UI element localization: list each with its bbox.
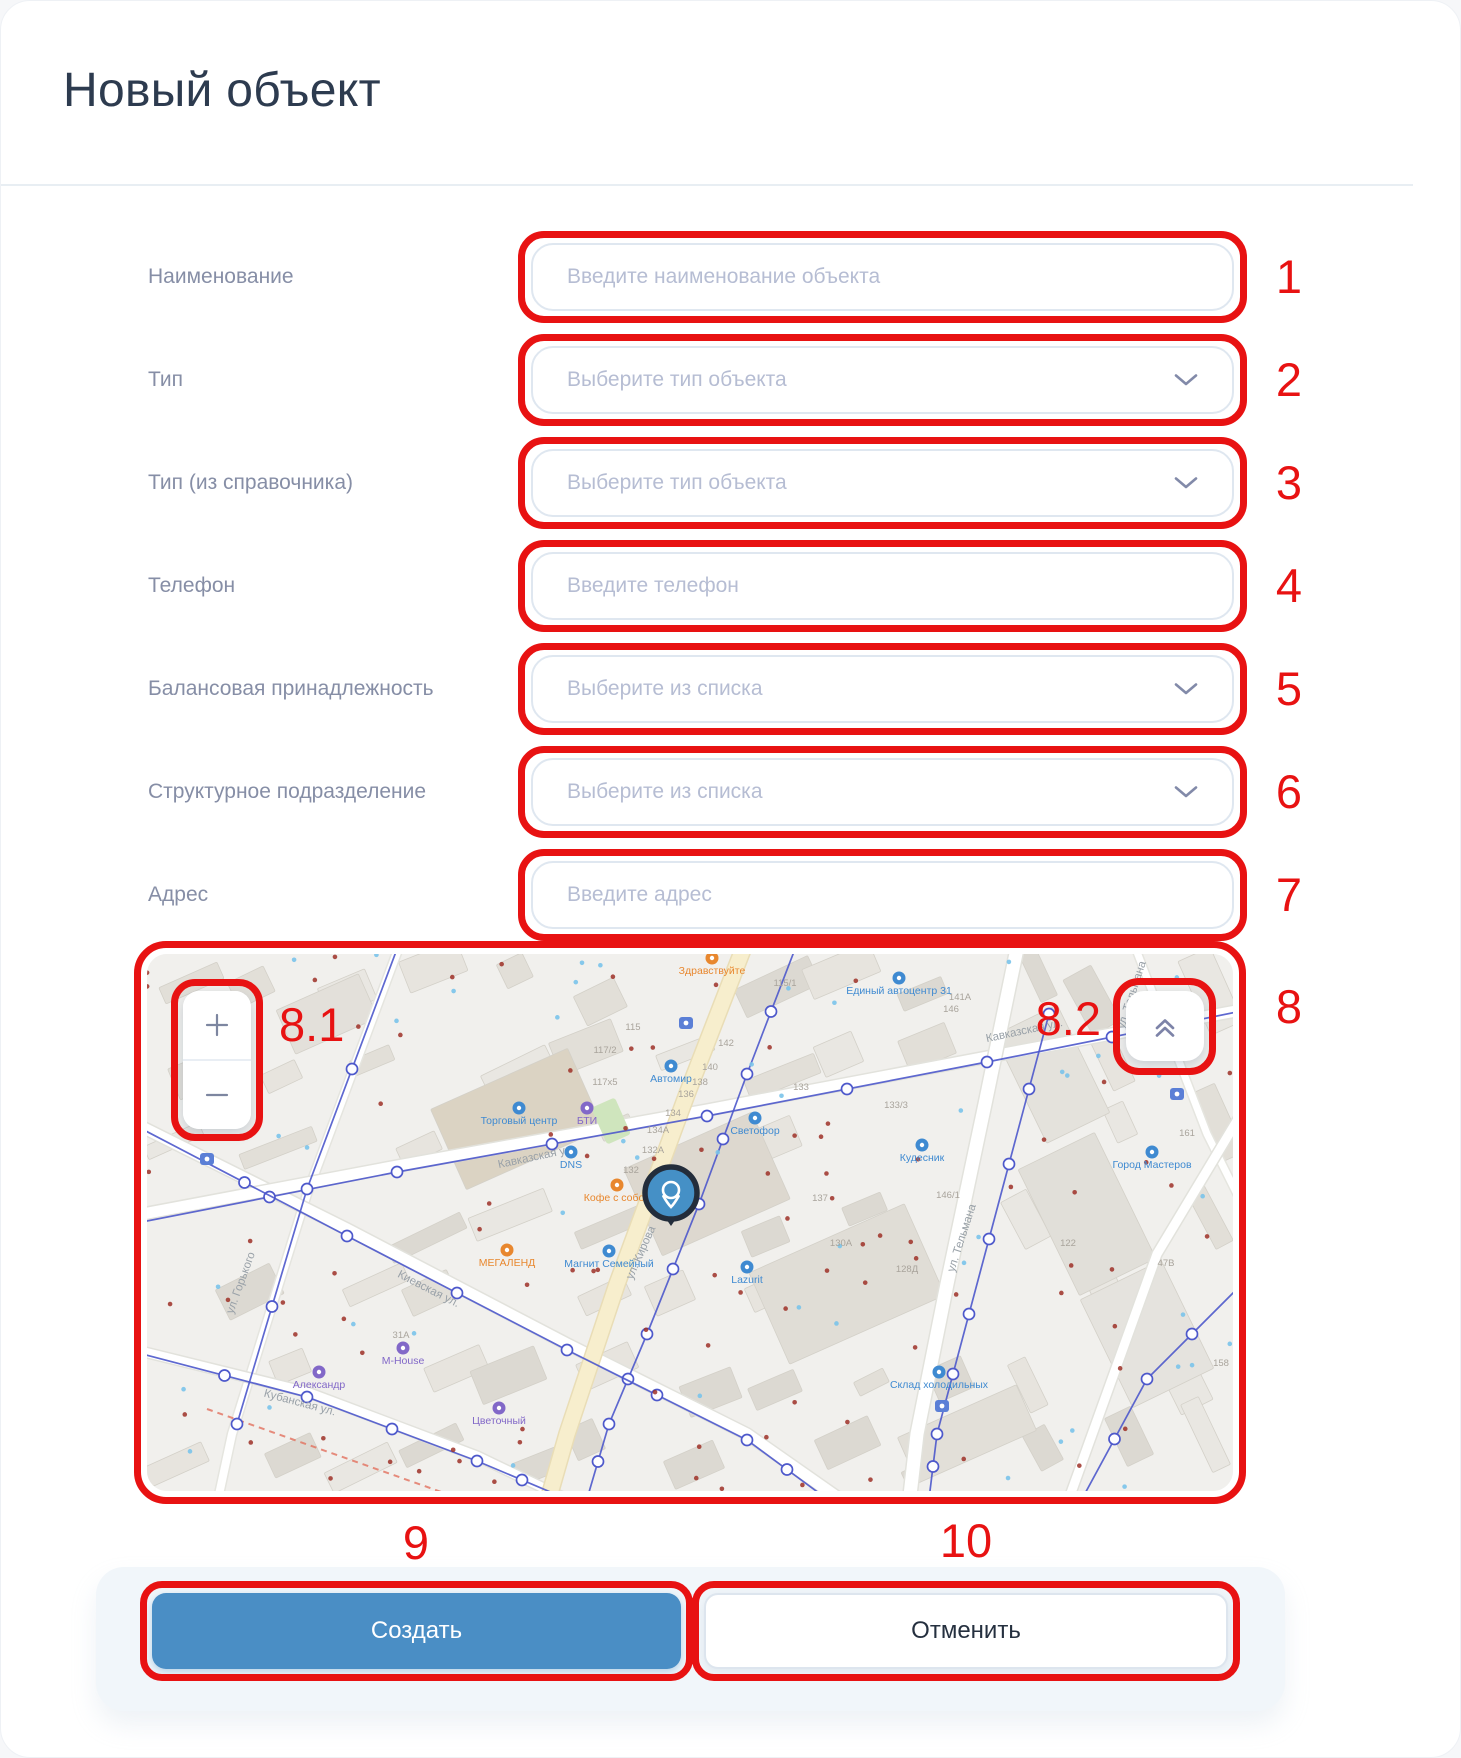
cancel-button[interactable]: Отменить xyxy=(704,1593,1228,1669)
zoom-in-button[interactable] xyxy=(183,991,251,1061)
svg-text:Город Мастеров: Город Мастеров xyxy=(1112,1159,1191,1171)
division-select[interactable]: Выберите из списка xyxy=(531,758,1234,826)
map-canvas[interactable]: ул. Кироваул. Тельманаул. ТельманаКавказ… xyxy=(147,954,1233,1491)
chevron-down-icon xyxy=(1174,476,1198,490)
house-number: 117/2 xyxy=(593,1045,616,1056)
map-image: ул. Кироваул. Тельманаул. ТельманаКавказ… xyxy=(147,954,1233,1491)
house-number: 47В xyxy=(1158,1258,1175,1269)
double-chevron-up-icon xyxy=(1149,1010,1181,1042)
svg-text:117х5: 117х5 xyxy=(592,1077,617,1088)
transit-stop-icon xyxy=(200,1153,214,1165)
svg-text:141А: 141А xyxy=(949,992,972,1003)
annotation-number-name: 1 xyxy=(1257,251,1321,303)
chevron-down-icon xyxy=(1174,373,1198,387)
name-label: Наименование xyxy=(148,265,294,289)
svg-text:142: 142 xyxy=(718,1038,734,1049)
house-number: 142 xyxy=(718,1038,734,1049)
chevron-down-icon xyxy=(1174,785,1198,799)
chevron-down-icon xyxy=(1174,682,1198,696)
address-label: Адрес xyxy=(148,883,208,907)
type-label: Тип xyxy=(148,368,183,392)
type-ref-select[interactable]: Выберите тип объекта xyxy=(531,449,1234,517)
house-number: 141А xyxy=(949,992,972,1003)
transit-stop-icon xyxy=(935,1400,949,1412)
svg-text:Единый автоцентр 31: Единый автоцентр 31 xyxy=(846,985,952,997)
map-zoom-control xyxy=(183,991,251,1129)
svg-text:130А: 130А xyxy=(830,1238,853,1249)
house-number: 133 xyxy=(793,1082,809,1093)
house-number: 137 xyxy=(812,1193,828,1204)
svg-text:132: 132 xyxy=(623,1165,639,1176)
svg-text:Светофор: Светофор xyxy=(730,1125,780,1137)
name-input[interactable] xyxy=(531,243,1234,311)
house-number: 122 xyxy=(1060,1238,1076,1249)
svg-text:117/2: 117/2 xyxy=(593,1045,616,1056)
zoom-out-button[interactable] xyxy=(183,1061,251,1129)
divider xyxy=(1,184,1413,186)
svg-text:133/3: 133/3 xyxy=(884,1100,908,1111)
svg-text:134: 134 xyxy=(665,1108,681,1119)
house-number: 138 xyxy=(692,1077,708,1088)
svg-text:МЕГАЛЕНД: МЕГАЛЕНД xyxy=(479,1257,536,1269)
svg-text:Магнит Семейный: Магнит Семейный xyxy=(564,1258,654,1270)
annotation-number-type-ref: 3 xyxy=(1257,457,1321,509)
house-number: 117х5 xyxy=(592,1077,617,1088)
house-number: 31А xyxy=(393,1330,411,1341)
house-number: 115 xyxy=(625,1022,640,1033)
division-label: Структурное подразделение xyxy=(148,780,426,804)
house-number: 134 xyxy=(665,1108,681,1119)
svg-text:Lazurit: Lazurit xyxy=(731,1274,763,1286)
svg-text:115/1: 115/1 xyxy=(773,978,796,989)
house-number: 140 xyxy=(702,1062,718,1073)
type-select-placeholder: Выберите тип объекта xyxy=(567,368,1162,392)
svg-text:140: 140 xyxy=(702,1062,718,1073)
annotation-number-division: 6 xyxy=(1257,766,1321,818)
house-number: 115/1 xyxy=(773,978,796,989)
house-number: 136 xyxy=(678,1089,694,1100)
balance-label: Балансовая принадлежность xyxy=(148,677,434,701)
house-number: 146 xyxy=(943,1004,959,1015)
svg-text:161: 161 xyxy=(1179,1128,1195,1139)
minus-icon xyxy=(204,1082,230,1108)
annotation-number-cancel: 10 xyxy=(934,1515,998,1567)
type-ref-select-placeholder: Выберите тип объекта xyxy=(567,471,1162,495)
svg-text:M-House: M-House xyxy=(382,1355,425,1367)
svg-text:133: 133 xyxy=(793,1082,809,1093)
house-number: 132А xyxy=(642,1145,665,1156)
svg-text:138: 138 xyxy=(692,1077,708,1088)
svg-text:Кудесник: Кудесник xyxy=(900,1152,945,1164)
house-number: 132 xyxy=(623,1165,639,1176)
svg-text:БТИ: БТИ xyxy=(577,1115,597,1127)
annotation-number-balance: 5 xyxy=(1257,663,1321,715)
house-number: 158 xyxy=(1213,1358,1229,1369)
svg-text:Александр: Александр xyxy=(293,1379,346,1391)
svg-text:146: 146 xyxy=(943,1004,959,1015)
annotation-number-phone: 4 xyxy=(1257,560,1321,612)
new-object-modal: Новый объект Наименование1ТипВыберите ти… xyxy=(0,0,1461,1758)
svg-text:31А: 31А xyxy=(393,1330,411,1341)
svg-text:Склад холодильных: Склад холодильных xyxy=(890,1379,989,1391)
svg-text:115: 115 xyxy=(625,1022,640,1033)
svg-text:Автомир: Автомир xyxy=(650,1073,692,1085)
division-select-placeholder: Выберите из списка xyxy=(567,780,1162,804)
map-collapse-button[interactable] xyxy=(1126,991,1204,1061)
annotation-number-create: 9 xyxy=(384,1517,448,1569)
house-number: 130А xyxy=(830,1238,853,1249)
type-ref-label: Тип (из справочника) xyxy=(148,471,353,495)
annotation-number-address: 7 xyxy=(1257,869,1321,921)
svg-text:128Д: 128Д xyxy=(896,1264,919,1275)
house-number: 133/3 xyxy=(884,1100,908,1111)
plus-icon xyxy=(204,1012,230,1038)
svg-text:134А: 134А xyxy=(647,1125,670,1136)
svg-text:Кофе с собой: Кофе с собой xyxy=(584,1192,651,1204)
house-number: 146/1 xyxy=(936,1190,960,1201)
svg-text:158: 158 xyxy=(1213,1358,1229,1369)
create-button[interactable]: Создать xyxy=(152,1593,681,1669)
svg-text:122: 122 xyxy=(1060,1238,1076,1249)
house-number: 128Д xyxy=(896,1264,919,1275)
balance-select-placeholder: Выберите из списка xyxy=(567,677,1162,701)
annotation-number-map: 8 xyxy=(1257,981,1321,1033)
house-number: 161 xyxy=(1179,1128,1195,1139)
svg-text:47В: 47В xyxy=(1158,1258,1175,1269)
page-title: Новый объект xyxy=(63,63,381,118)
svg-text:146/1: 146/1 xyxy=(936,1190,960,1201)
house-number: 134А xyxy=(647,1125,670,1136)
type-select[interactable]: Выберите тип объекта xyxy=(531,346,1234,414)
transit-stop-icon xyxy=(679,1017,693,1029)
transit-stop-icon xyxy=(1170,1088,1184,1100)
phone-input[interactable] xyxy=(531,552,1234,620)
svg-text:136: 136 xyxy=(678,1089,694,1100)
annotation-number-type: 2 xyxy=(1257,354,1321,406)
svg-text:132А: 132А xyxy=(642,1145,665,1156)
balance-select[interactable]: Выберите из списка xyxy=(531,655,1234,723)
phone-label: Телефон xyxy=(148,574,235,598)
svg-text:Здравствуйте: Здравствуйте xyxy=(679,965,746,977)
svg-text:DNS: DNS xyxy=(560,1159,582,1171)
svg-text:Цветочный: Цветочный xyxy=(472,1415,526,1427)
svg-text:Торговый центр: Торговый центр xyxy=(481,1115,558,1127)
address-input[interactable] xyxy=(531,861,1234,929)
svg-text:137: 137 xyxy=(812,1193,828,1204)
